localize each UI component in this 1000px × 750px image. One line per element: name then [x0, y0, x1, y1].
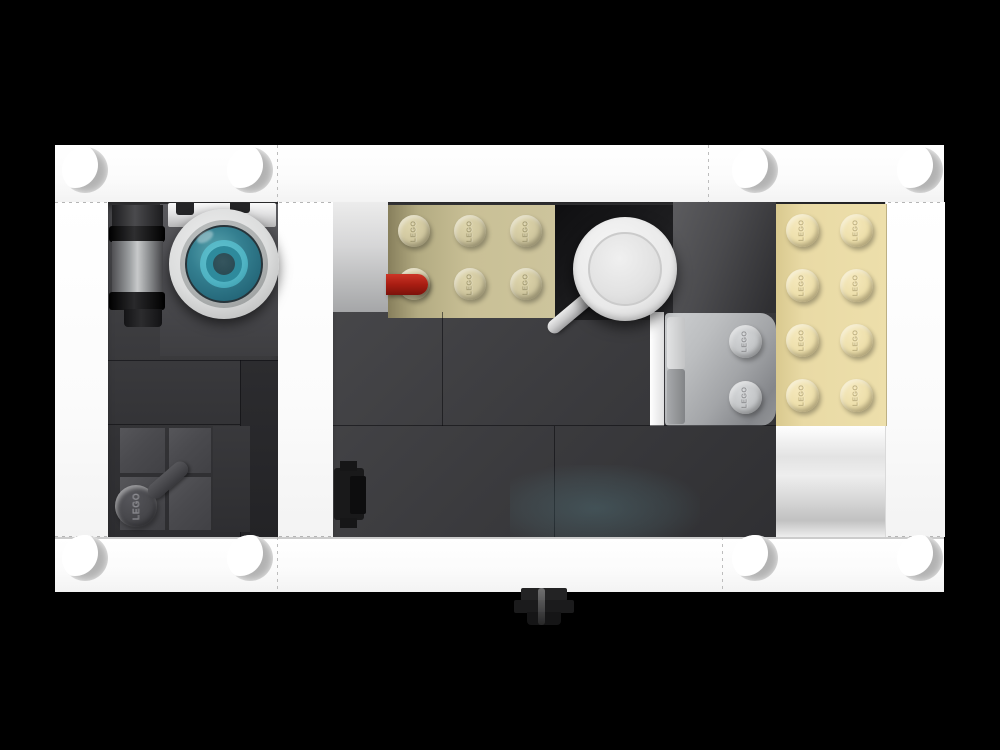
antistud-recess: [732, 147, 778, 193]
tile-seam: [442, 312, 443, 426]
frame-left-plate: [55, 202, 108, 537]
stud-logo-text: LEGO: [131, 492, 140, 520]
stud-logo-text: LEGO: [799, 219, 806, 241]
frame-right-plate: [885, 202, 945, 537]
barrel-piece-stub: [124, 309, 162, 327]
barrel-piece-body: [112, 241, 163, 293]
right-tan-plate-stud: LEGO: [786, 269, 819, 302]
black-clip-nub: [340, 518, 357, 528]
antistud-recess: [732, 535, 778, 581]
stud-logo-text: LEGO: [853, 274, 860, 296]
lens-bracket-notch: [176, 203, 194, 215]
barrel-piece-ring: [109, 292, 165, 310]
tile-seam: [108, 424, 240, 425]
stud-logo-text: LEGO: [467, 220, 474, 242]
right-tan-plate-stud: LEGO: [840, 269, 873, 302]
antistud-recess: [897, 535, 943, 581]
right-tan-plate-stud: LEGO: [840, 214, 873, 247]
frame-top-plate: [55, 145, 944, 204]
right-tan-plate-stud: LEGO: [840, 379, 873, 412]
stud-logo-text: LEGO: [853, 329, 860, 351]
antistud-recess: [227, 535, 273, 581]
light-gray-panel: [333, 202, 388, 312]
black-clip-nub: [340, 461, 357, 471]
pad-tile: [120, 428, 165, 473]
frame-seam-bottom-right: [722, 537, 723, 590]
frame-divider-plate: [278, 202, 333, 537]
gray-bracket-wall-bottom: [667, 369, 685, 424]
stud-logo-text: LEGO: [523, 273, 530, 295]
pad-tile: [169, 477, 211, 530]
gray-plate-stud: LEGO: [729, 381, 762, 414]
stud-logo-text: LEGO: [523, 220, 530, 242]
white-strip-tile: [650, 312, 664, 426]
barrel-piece-ring: [109, 226, 165, 242]
frame-bottom-plate: [55, 537, 944, 592]
black-clip-plate: [350, 476, 366, 514]
teal-glow: [510, 465, 700, 537]
stud-logo-text: LEGO: [853, 384, 860, 406]
stud-logo-text: LEGO: [799, 329, 806, 351]
tile-seam: [108, 360, 278, 361]
middle-tan-plate-stud: LEGO: [398, 215, 430, 247]
middle-tan-plate-stud: LEGO: [510, 268, 542, 300]
gray-plate-stud: LEGO: [729, 325, 762, 358]
gray-bracket-wall-top: [667, 317, 685, 369]
antistud-recess: [62, 535, 108, 581]
right-tan-plate-stud: LEGO: [786, 324, 819, 357]
lens-center-hole: [213, 253, 235, 275]
right-tan-plate-stud: LEGO: [786, 379, 819, 412]
antistud-recess: [897, 147, 943, 193]
stud-logo-text: LEGO: [799, 384, 806, 406]
top-right-gray-tile: [673, 202, 776, 313]
stud-logo-text: LEGO: [853, 219, 860, 241]
bottom-right-white-plate: [776, 426, 885, 537]
knob-highlight: [538, 588, 545, 625]
middle-tan-plate-stud: LEGO: [454, 215, 486, 247]
stud-logo-text: LEGO: [742, 330, 749, 352]
antistud-recess: [227, 147, 273, 193]
red-bar-piece: [386, 274, 428, 295]
stud-logo-text: LEGO: [411, 220, 418, 242]
frame-seam-top-right: [708, 145, 709, 202]
magnifier-lens: [588, 232, 662, 306]
barrel-piece-top: [112, 205, 163, 227]
antistud-recess: [62, 147, 108, 193]
render-stage: LEGOLEGOLEGOLEGOLEGOLEGOLEGOLEGOLEGOLEGO…: [0, 0, 1000, 750]
right-tan-plate-stud: LEGO: [786, 214, 819, 247]
stud-logo-text: LEGO: [742, 386, 749, 408]
middle-tan-plate-stud: LEGO: [454, 268, 486, 300]
stud-logo-text: LEGO: [467, 273, 474, 295]
middle-tan-plate-stud: LEGO: [510, 215, 542, 247]
right-tan-plate-stud: LEGO: [840, 324, 873, 357]
stud-logo-text: LEGO: [799, 274, 806, 296]
pad-dark-strip: [213, 426, 250, 532]
